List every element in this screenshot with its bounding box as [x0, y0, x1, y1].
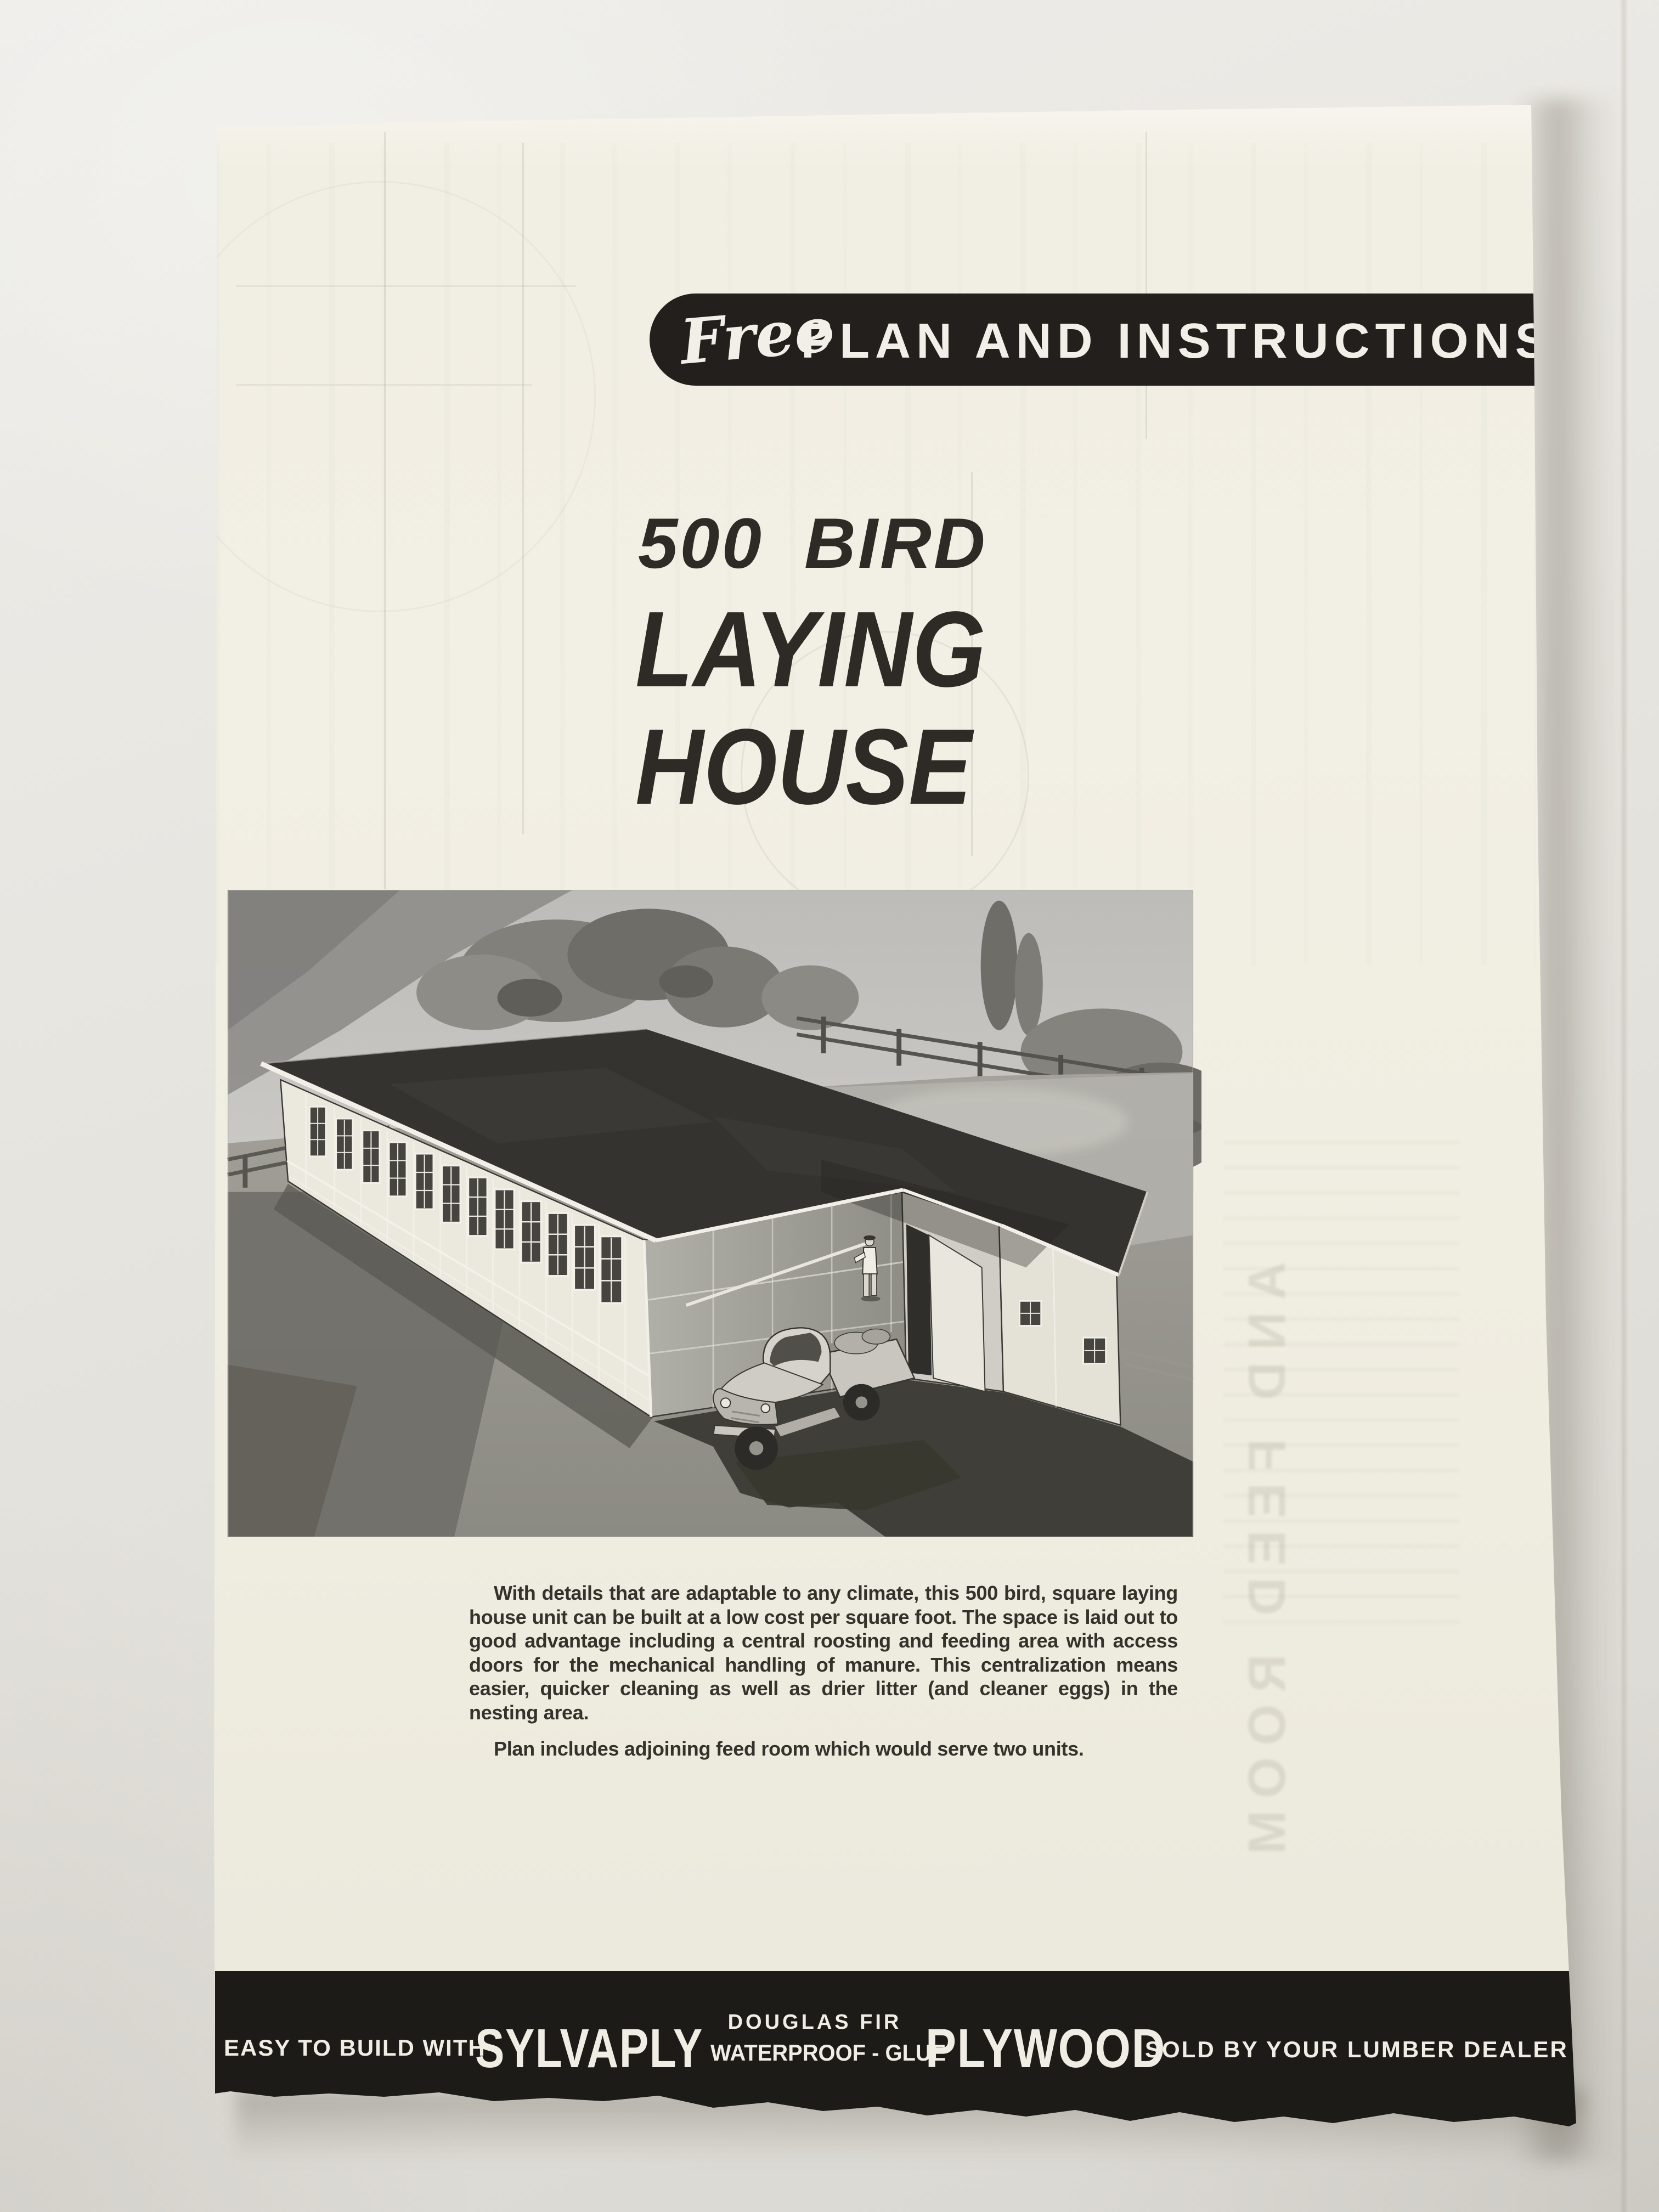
stack-top: DOUGLAS FIR: [705, 2011, 924, 2034]
caption-paragraph-2: Plan includes adjoining feed room which …: [469, 1737, 1178, 1761]
banner-stack: DOUGLAS FIR WATERPROOF - GLUE: [705, 2011, 924, 2066]
title-line-1: 500 BIRD: [638, 507, 988, 579]
wall-crease: [1620, 0, 1628, 2212]
caption-block: With details that are adaptable to any c…: [469, 1581, 1178, 1761]
banner-prefix: EASY TO BUILD WITH: [224, 2035, 486, 2061]
stack-bottom: WATERPROOF - GLUE: [710, 2040, 919, 2066]
caption-paragraph-1: With details that are adaptable to any c…: [469, 1581, 1178, 1724]
hat: [864, 1235, 876, 1240]
photo-of-leaflet: { "document": { "top_banner": { "script_…: [0, 0, 1659, 2212]
feed-room-window: [1019, 1301, 1041, 1325]
title-line-3: HOUSE: [635, 713, 972, 821]
brand-plywood: PLYWOOD: [926, 2017, 1166, 2080]
showthrough-circle: [165, 181, 596, 612]
showthrough-line: [1145, 132, 1147, 439]
banner-label: PLAN AND INSTRUCTIONS: [801, 313, 1554, 370]
paper-sheet: AND FEED ROOM Free PLAN AND INSTRUCTIONS…: [0, 0, 1659, 2212]
free-plan-banner: Free PLAN AND INSTRUCTIONS: [650, 294, 1534, 386]
banner-suffix: SOLD BY YOUR LUMBER DEALER: [1145, 2036, 1568, 2063]
cover-illustration: [219, 890, 1201, 1537]
headlight: [761, 1404, 770, 1413]
open-doorway: [906, 1224, 932, 1375]
feed-room-window: [1083, 1338, 1105, 1363]
showthrough-mirrored-text: AND FEED ROOM: [1237, 1262, 1297, 1866]
brand-sylvaply: SYLVAPLY: [475, 2017, 703, 2080]
title-line-2: LAYING: [635, 596, 986, 703]
headlight: [721, 1398, 731, 1408]
